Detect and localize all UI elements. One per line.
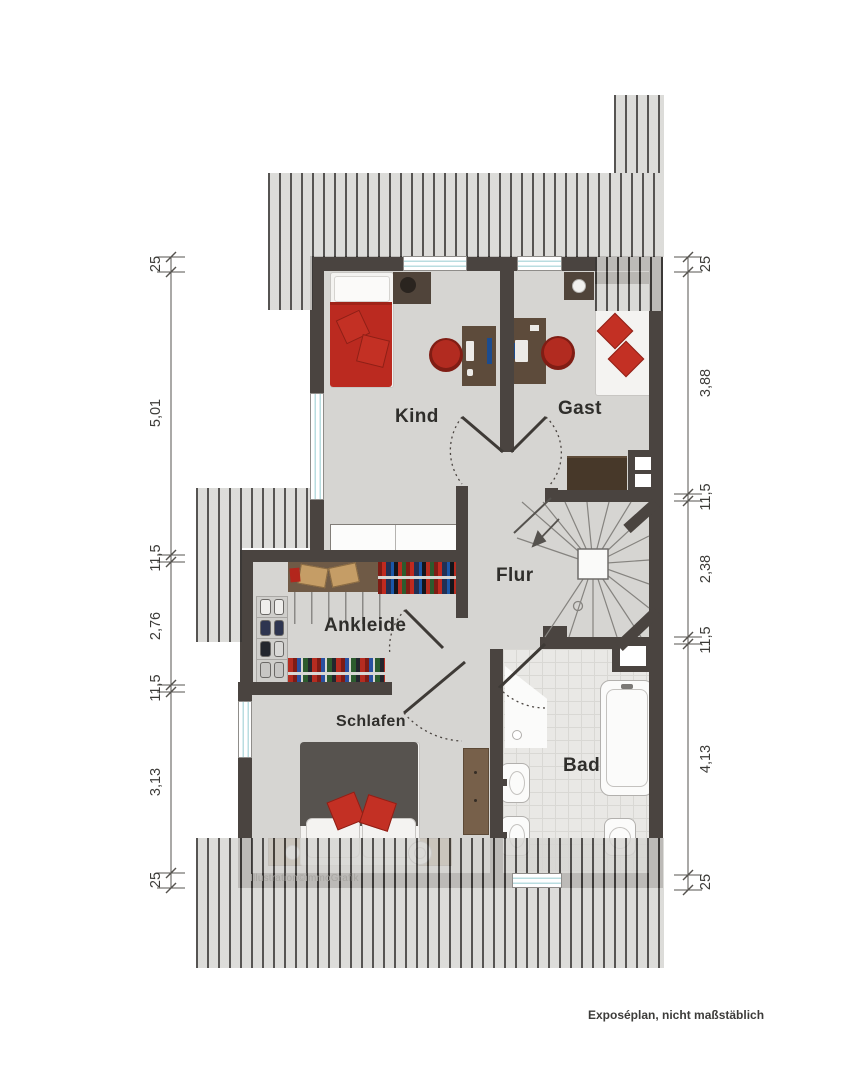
footer-note: Exposéplan, nicht maßstäblich	[588, 1008, 764, 1022]
room-label-schlafen: Schlafen	[336, 713, 406, 731]
roof-hatch-gast-overlay	[595, 257, 663, 311]
room-label-flur: Flur	[496, 565, 534, 587]
dim-right-1: 3,88	[698, 369, 714, 397]
kind-wardrobe	[330, 524, 464, 552]
roof-hatch-top-column	[614, 95, 664, 173]
gast-desk-item	[530, 325, 539, 331]
wall-kind-ankleide	[240, 550, 456, 562]
kind-bed-pillow	[334, 276, 390, 302]
gast-shelf-niche	[628, 450, 663, 492]
roof-hatch-left-lower	[196, 548, 242, 642]
wall-flur-west	[456, 486, 468, 618]
dim-right-0: 25	[698, 256, 714, 272]
ankleide-hanging-clothes	[378, 562, 458, 594]
dim-right-4: 11,5	[698, 626, 714, 653]
dim-left-5: 3,13	[148, 768, 164, 796]
dim-left-0: 25	[148, 256, 164, 272]
gast-lamp	[572, 279, 586, 293]
roof-hatch-left-upper	[196, 488, 310, 548]
wall-bad-door-stub	[543, 626, 567, 639]
roof-hatch-top-band	[268, 173, 664, 257]
dimension-chain-left	[157, 252, 185, 893]
dim-right-6: 25	[698, 874, 714, 890]
room-label-kind: Kind	[395, 406, 439, 428]
wall-stair-stub	[545, 488, 558, 502]
window-bad-bottom	[512, 873, 562, 888]
dim-left-3: 2,76	[148, 612, 164, 640]
schlafen-dresser	[463, 748, 489, 835]
dim-right-2: 11,5	[698, 483, 714, 510]
wall-kind-gast-divider	[500, 256, 514, 452]
window-kind-left	[310, 393, 324, 500]
gast-laptop	[515, 340, 528, 362]
dim-left-1: 5,01	[148, 399, 164, 427]
wall-ankleide-schlafen	[238, 682, 392, 695]
dim-right-3: 2,38	[698, 555, 714, 583]
dim-left-2: 11,5	[148, 544, 164, 571]
kind-desk-chair	[429, 338, 463, 372]
window-schlafen-left	[238, 701, 252, 758]
gast-desk-chair	[541, 336, 575, 370]
dim-right-5: 4,13	[698, 745, 714, 773]
illustrator-watermark: Illustration©immoGrafik	[250, 873, 359, 884]
room-label-bad: Bad	[563, 755, 600, 777]
bad-shelf-niche	[612, 640, 654, 672]
room-label-ankleide: Ankleide	[324, 615, 406, 637]
floor-plan: Kind Gast Flur Ankleide Schlafen Bad 25 …	[0, 0, 861, 1080]
roof-hatch-top-left-ext	[268, 257, 313, 310]
window-gast-top	[517, 256, 562, 271]
wall-right	[649, 256, 663, 888]
window-kind-top	[403, 256, 467, 271]
kind-mouse	[467, 369, 473, 376]
bad-bathtub	[600, 680, 654, 796]
bad-sink	[500, 763, 530, 803]
bad-shower-drain	[512, 730, 522, 740]
gast-sideboard	[567, 456, 627, 490]
dim-left-4: 11,5	[148, 674, 164, 701]
kind-lamp	[400, 277, 416, 293]
kind-monitor	[487, 338, 492, 364]
ankleide-red-item	[289, 568, 300, 583]
roof-hatch-bottom-band	[196, 838, 664, 968]
ankleide-shoe-shelf	[256, 596, 288, 684]
room-label-gast: Gast	[558, 398, 602, 420]
kind-keyboard	[466, 341, 474, 361]
dim-left-6: 25	[148, 872, 164, 888]
